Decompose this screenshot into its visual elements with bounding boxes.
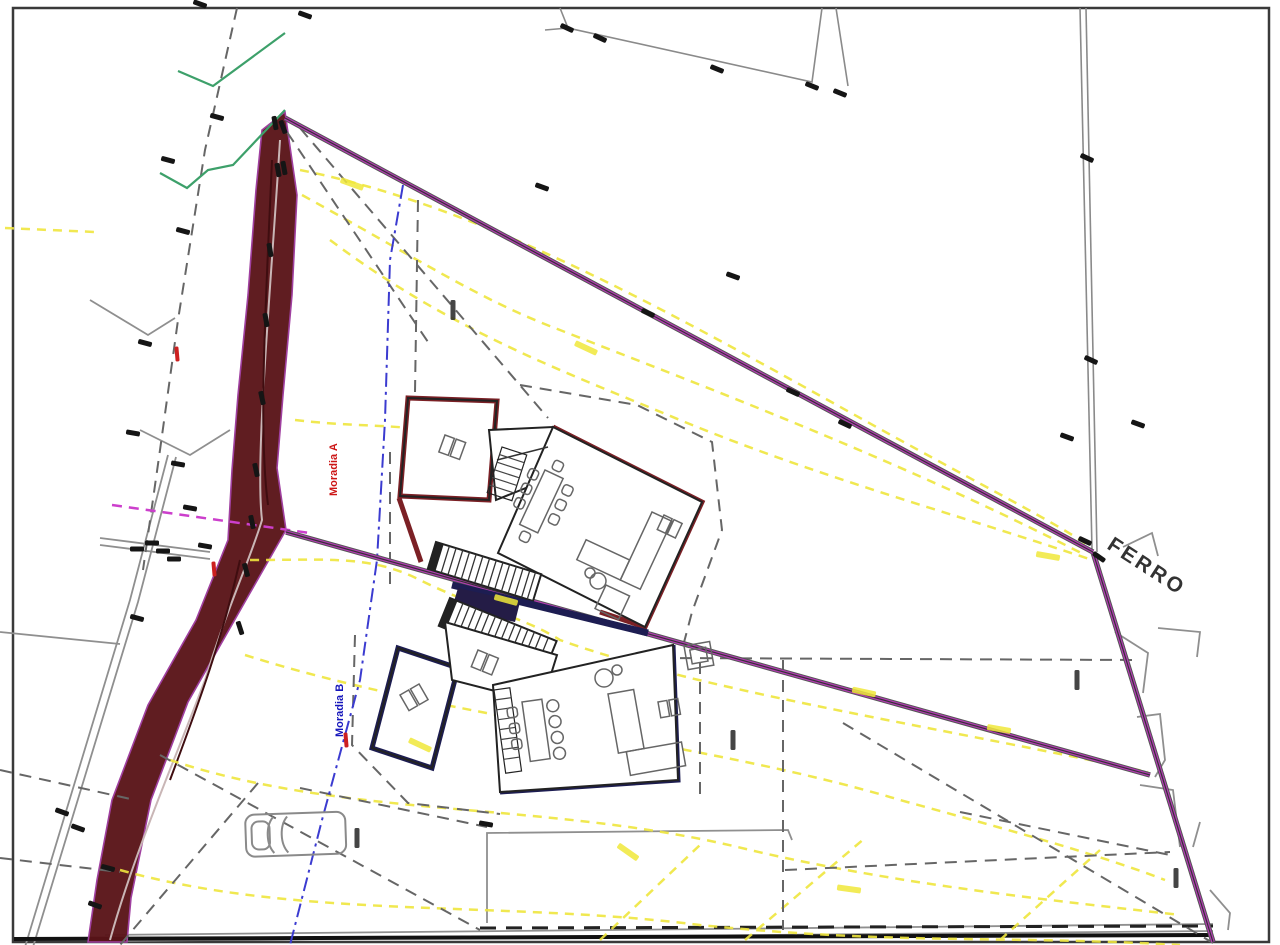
site-plan-canvas: FERRO Moradia A Moradia B — [0, 0, 1280, 945]
elevation-label — [355, 828, 360, 848]
house-a-label: Moradia A — [328, 443, 340, 496]
site-plan-page: FERRO Moradia A Moradia B — [0, 0, 1280, 945]
elevation-label — [731, 730, 736, 750]
house-a-wing-red — [400, 398, 497, 500]
elevation-label — [451, 300, 456, 320]
survey-point-marker — [145, 541, 159, 546]
survey-point-marker — [156, 549, 170, 554]
elevation-label — [1075, 670, 1080, 690]
survey-point-marker — [167, 557, 181, 562]
house-b-label: Moradia B — [334, 684, 346, 737]
elevation-label — [1174, 868, 1179, 888]
survey-point-marker — [130, 547, 144, 552]
